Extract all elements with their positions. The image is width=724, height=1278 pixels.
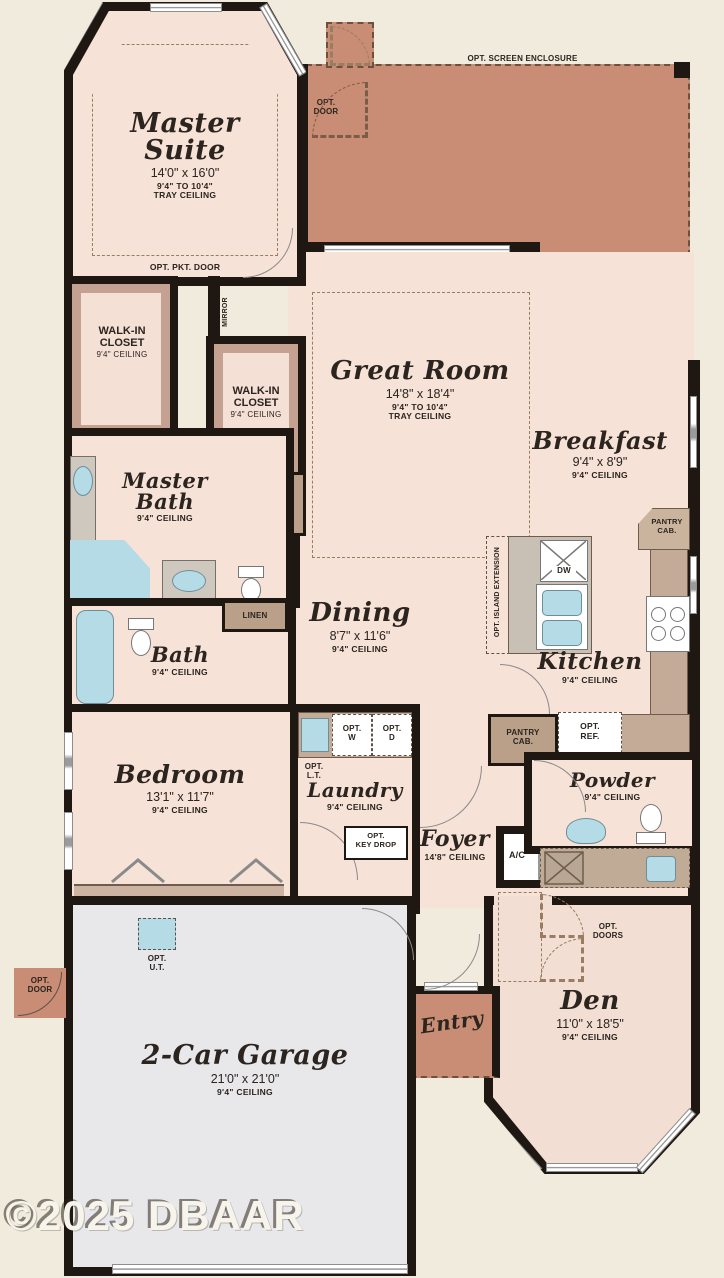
window-master-top (150, 3, 222, 12)
bedroom-label: Bedroom 13'1" x 11'7" 9'4" CEILING (95, 762, 265, 815)
opt-pkt-door-label: OPT. PKT. DOOR (130, 263, 240, 273)
laundry-tub (301, 718, 329, 752)
dining-label: Dining 8'7" x 11'6" 9'4" CEILING (280, 600, 440, 654)
window-bedroom-left-2 (64, 812, 73, 870)
breakfast-name: Breakfast (520, 428, 680, 453)
master-suite-label: Master Suite 14'0" x 16'0" 9'4" TO 10'4"… (105, 110, 265, 200)
wic2-ceiling: 9'4" CEILING (212, 411, 300, 419)
pantry-cab-upper-label: PANTRY CAB. (644, 518, 690, 535)
laundry-name: Laundry (300, 780, 410, 801)
dining-name: Dining (280, 600, 440, 627)
burner (670, 626, 685, 641)
foyer-ceiling: 14'8" CEILING (400, 853, 510, 862)
opt-key-drop-label: OPT. KEY DROP (346, 832, 406, 849)
master-sink-left (73, 466, 93, 496)
master-suite-dims: 14'0" x 16'0" (105, 167, 265, 180)
breakfast-ceiling: 9'4" CEILING (520, 471, 680, 480)
pantry-cab-lower-label: PANTRY CAB. (492, 728, 554, 746)
dishwasher (540, 540, 588, 582)
bath-toilet (128, 618, 154, 630)
kitchen-name: Kitchen (530, 650, 650, 674)
great-room-dims: 14'8" x 18'4" (320, 388, 520, 401)
burner (651, 626, 666, 641)
master-suite-name: Master Suite (105, 110, 265, 164)
powder-toilet (636, 832, 666, 844)
linen-label: LINEN (228, 611, 282, 620)
bedroom-name: Bedroom (95, 762, 265, 788)
breakfast-dims: 9'4" x 8'9" (520, 456, 680, 469)
great-room-label: Great Room 14'8" x 18'4" 9'4" TO 10'4" T… (320, 358, 520, 421)
foyer-name: Foyer (400, 828, 510, 851)
kitchen-sink-1 (542, 590, 582, 616)
bath-tub (76, 610, 114, 704)
dw-label: DW (552, 566, 576, 575)
laundry-ceiling: 9'4" CEILING (300, 803, 410, 812)
kitchen-ceiling: 9'4" CEILING (530, 676, 650, 685)
greatroom-tray-ceiling (312, 292, 530, 558)
master-bath-label: Master Bath 9'4" CEILING (110, 470, 220, 523)
window-bedroom-left-1 (64, 732, 73, 790)
opt-doors-frame (498, 892, 542, 982)
den-label: Den 11'0" x 18'5" 9'4" CEILING (520, 988, 660, 1042)
powder-sink (566, 818, 606, 844)
master-suite-ceiling: 9'4" TO 10'4" TRAY CEILING (105, 182, 265, 200)
stove (646, 596, 690, 652)
master-bath-name: Master Bath (110, 470, 220, 512)
opt-doors-label: OPT. DOORS (584, 922, 632, 940)
bedroom-dims: 13'1" x 11'7" (95, 791, 265, 804)
kitchen-sink-2 (542, 620, 582, 646)
closet-chevron-2 (228, 858, 284, 884)
burner (670, 607, 685, 622)
dining-dims: 8'7" x 11'6" (280, 630, 440, 643)
den-name: Den (520, 988, 660, 1015)
utility-cabinet-x (544, 851, 584, 885)
window-breakfast-right-1 (690, 396, 697, 468)
garage-ceiling: 9'4" CEILING (130, 1088, 360, 1097)
opt-ref-label: OPT. REF. (562, 722, 618, 742)
kitchen-label: Kitchen 9'4" CEILING (530, 650, 650, 685)
great-room-name: Great Room (320, 358, 520, 385)
den-ceiling: 9'4" CEILING (520, 1033, 660, 1042)
burner (651, 607, 666, 622)
mirror-label: MIRROR (222, 282, 230, 342)
wic1-name: WALK-IN CLOSET (74, 326, 170, 349)
dining-ceiling: 9'4" CEILING (280, 645, 440, 654)
bath-toilet-bowl (131, 630, 151, 656)
den-dims: 11'0" x 18'5" (520, 1018, 660, 1031)
garage-name: 2-Car Garage (130, 1042, 360, 1070)
great-room-ceiling: 9'4" TO 10'4" TRAY CEILING (320, 403, 520, 421)
opt-screen-enclosure-label: OPT. SCREEN ENCLOSURE (430, 54, 615, 63)
closet-chevron-1 (110, 858, 166, 884)
wic1-label: WALK-IN CLOSET 9'4" CEILING (74, 326, 170, 359)
laundry-label: Laundry 9'4" CEILING (300, 780, 410, 812)
master-sink-2 (172, 570, 206, 592)
bath-ceiling: 9'4" CEILING (130, 668, 230, 677)
garage-dims: 21'0" x 21'0" (130, 1073, 360, 1086)
bedroom-ceiling: 9'4" CEILING (95, 806, 265, 815)
opt-utility-tub (138, 918, 176, 950)
opt-island-extension-label: OPT. ISLAND EXTENSION (494, 542, 502, 642)
wic2-label: WALK-IN CLOSET 9'4" CEILING (212, 386, 300, 419)
opt-d-label: OPT. D (374, 724, 410, 742)
opt-ut-label: OPT. U.T. (136, 954, 178, 972)
utility-sink (646, 856, 676, 882)
opt-w-label: OPT. W (334, 724, 370, 742)
lanai-corner-post (674, 62, 690, 78)
powder-toilet-bowl (640, 804, 662, 832)
watermark: ©2025 DBAAR (6, 1192, 305, 1240)
window-den-bottom (546, 1163, 638, 1172)
window-kitchen-right (690, 556, 697, 614)
master-toilet (238, 566, 264, 578)
foyer-label: Foyer 14'8" CEILING (400, 828, 510, 862)
master-bath-ceiling: 9'4" CEILING (110, 514, 220, 523)
garage-label: 2-Car Garage 21'0" x 21'0" 9'4" CEILING (130, 1042, 360, 1097)
wic1-ceiling: 9'4" CEILING (74, 351, 170, 359)
floor-plan: OPT. SCREEN ENCLOSURE OPT. DOOR Master S… (0, 0, 724, 1278)
garage-door (112, 1264, 408, 1274)
wic2-name: WALK-IN CLOSET (212, 386, 300, 409)
breakfast-label: Breakfast 9'4" x 8'9" 9'4" CEILING (520, 428, 680, 480)
